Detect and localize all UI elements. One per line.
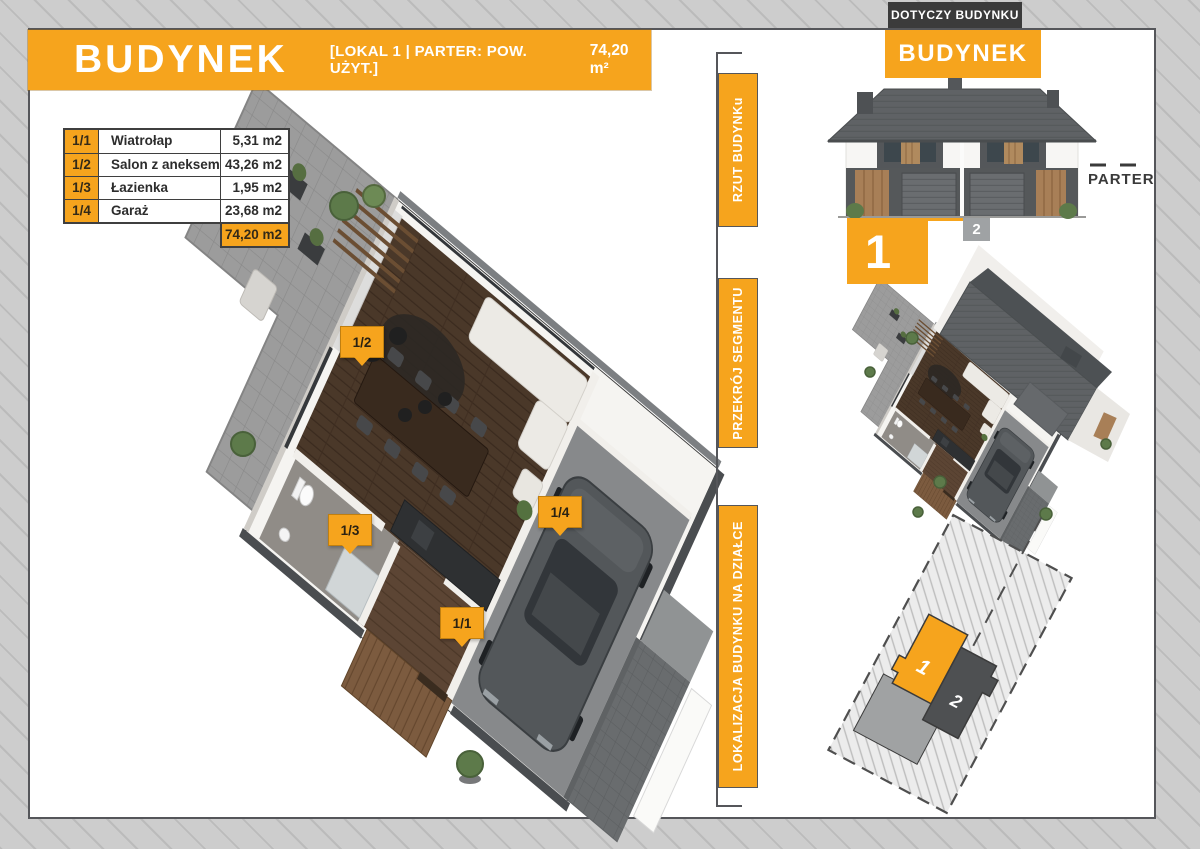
table-total-row: 74,20 m2	[63, 224, 290, 248]
table-row: 1/1 Wiatrołap 5,31 m2	[65, 130, 288, 153]
tab-lokalizacja-budynku[interactable]: LOKALIZACJA BUDYNKU NA DZIAŁCE	[718, 505, 758, 788]
level-label: PARTER	[1088, 171, 1160, 188]
header-area: 74,20 m²	[590, 42, 651, 78]
room-area: 5,31 m2	[221, 130, 288, 153]
room-name: Łazienka	[99, 177, 221, 199]
room-no: 1/3	[65, 177, 99, 199]
rooms-table: 1/1 Wiatrołap 5,31 m2 1/2 Salon z anekse…	[63, 128, 290, 248]
table-row: 1/3 Łazienka 1,95 m2	[65, 176, 288, 199]
tab-przekroj-segmentu[interactable]: PRZEKRÓJ SEGMENTU	[718, 278, 758, 448]
room-no: 1/4	[65, 200, 99, 222]
room-area: 43,26 m2	[221, 154, 288, 176]
room-no: 1/2	[65, 154, 99, 176]
tab-rzut-label: RZUT BUDYNKu	[731, 97, 745, 202]
room-no: 1/1	[65, 130, 99, 153]
total-area: 74,20 m2	[220, 224, 290, 248]
unit-1-selector[interactable]: 1	[847, 218, 928, 284]
tab-rzut-budynku[interactable]: RZUT BUDYNKu	[718, 73, 758, 227]
room-marker-1-4[interactable]: 1/4	[538, 496, 582, 528]
room-area: 1,95 m2	[221, 177, 288, 199]
room-area: 23,68 m2	[221, 200, 288, 222]
table-row: 1/4 Garaż 23,68 m2	[65, 199, 288, 222]
room-name: Wiatrołap	[99, 130, 221, 153]
header-lokal-tag: [LOKAL 1 | PARTER: POW. UŻYT.]	[330, 43, 577, 77]
room-marker-1-2[interactable]: 1/2	[340, 326, 384, 358]
room-marker-1-1[interactable]: 1/1	[440, 607, 484, 639]
room-marker-1-3[interactable]: 1/3	[328, 514, 372, 546]
applies-to-building-badge: DOTYCZY BUDYNKU	[888, 2, 1022, 28]
page-title: BUDYNEK	[74, 38, 288, 82]
tab-lokalizacja-label: LOKALIZACJA BUDYNKU NA DZIAŁCE	[731, 521, 745, 771]
unit-2-selector[interactable]: 2	[963, 218, 990, 241]
building-title-badge: BUDYNEK	[885, 30, 1041, 78]
table-row: 1/2 Salon z aneksem 43,26 m2	[65, 153, 288, 176]
unit-connector	[928, 218, 964, 221]
tab-przekroj-label: PRZEKRÓJ SEGMENTU	[731, 287, 745, 440]
header-bar: BUDYNEK [LOKAL 1 | PARTER: POW. UŻYT.] 7…	[28, 30, 651, 90]
room-name: Garaż	[99, 200, 221, 222]
room-name: Salon z aneksem	[99, 154, 221, 176]
